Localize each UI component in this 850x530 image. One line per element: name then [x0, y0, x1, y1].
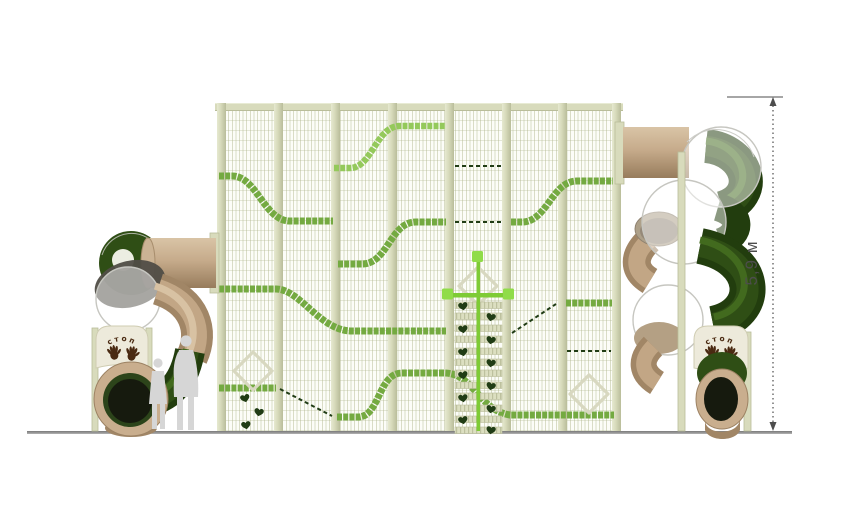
- paw-grip-marks: [240, 302, 497, 435]
- right-spiral-slide: стоп: [615, 122, 761, 439]
- bar-end-cap: [442, 289, 453, 300]
- pole-top-cap: [472, 251, 483, 262]
- stop-sign-left: [96, 326, 148, 368]
- slide-exit-hole: [704, 377, 738, 421]
- center-ladder: [442, 251, 514, 434]
- tube-flange: [615, 122, 624, 184]
- climbing-routes: [219, 126, 614, 417]
- adult-silhouette: [180, 335, 191, 346]
- ladder-center-pole: [477, 257, 481, 431]
- slide-exit-hole: [108, 379, 152, 423]
- climb-band: [338, 222, 446, 264]
- clear-dome: [96, 267, 160, 331]
- child-silhouette: [153, 358, 162, 367]
- climb-band: [219, 289, 446, 331]
- arrow-down-icon: [770, 422, 777, 431]
- climb-band: [511, 181, 613, 222]
- climb-band: [219, 176, 333, 221]
- scene-graphics: стоп: [0, 0, 850, 530]
- climb-band: [334, 126, 446, 168]
- arrow-up-icon: [770, 97, 777, 106]
- slide-support-post: [678, 152, 685, 431]
- dimension-label: 5,9 м: [742, 240, 761, 285]
- diamond-frame: [234, 352, 272, 390]
- bar-end-cap: [503, 289, 514, 300]
- ladder-top-bar: [446, 293, 508, 298]
- climb-rope: [280, 389, 332, 416]
- diamond-frame: [570, 375, 608, 413]
- climb-rope: [512, 304, 556, 333]
- playground-elevation-scene: стоп: [0, 0, 850, 530]
